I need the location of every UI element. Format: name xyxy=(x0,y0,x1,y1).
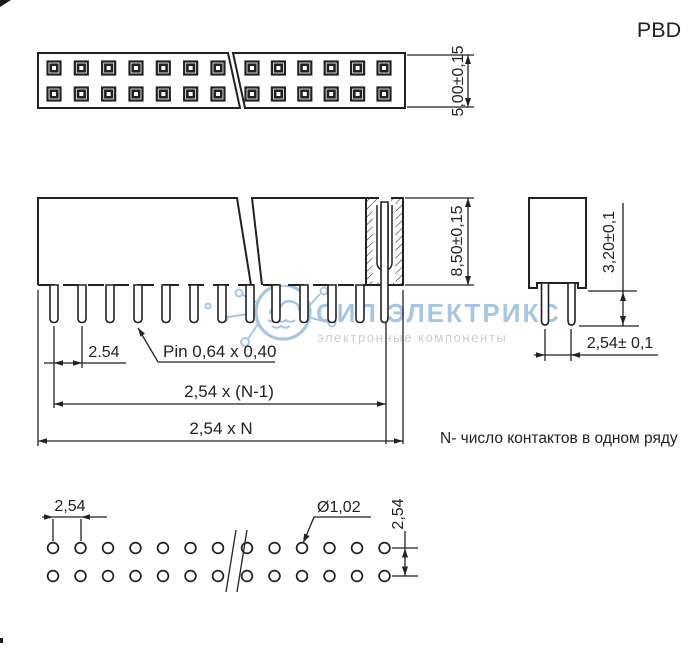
pin xyxy=(542,283,549,325)
footprint-hole xyxy=(130,543,141,554)
socket-hole-inner xyxy=(275,65,282,72)
socket-hole-inner xyxy=(249,91,256,98)
footprint-hole xyxy=(242,571,253,582)
footprint-hole xyxy=(130,571,141,582)
footprint-hole xyxy=(379,571,390,582)
socket-hole-inner xyxy=(133,91,140,98)
pin-size-label: Pin 0,64 x 0,40 xyxy=(163,342,276,361)
socket-hole-inner xyxy=(249,65,256,72)
socket-hole-inner xyxy=(381,91,388,98)
footprint-hole xyxy=(103,543,114,554)
footprint-hole xyxy=(75,543,86,554)
socket-hole-inner xyxy=(51,65,58,72)
break-line xyxy=(237,530,247,592)
socket-hole-inner xyxy=(302,65,309,72)
pin xyxy=(218,285,226,323)
dim-top-height-label: 5,00±0,15 xyxy=(450,45,467,116)
corner-mark-bottom-left xyxy=(0,638,3,643)
arrowhead xyxy=(73,360,82,366)
dim-side-height-label: 8,50±0,15 xyxy=(449,205,466,276)
footprint-hole xyxy=(352,543,363,554)
arrowhead xyxy=(536,352,545,358)
socket-hole-inner xyxy=(381,65,388,72)
arrowhead xyxy=(377,401,386,407)
arrowhead xyxy=(81,514,90,520)
break-line xyxy=(226,530,236,592)
pin xyxy=(50,285,58,323)
footprint-holes xyxy=(48,543,390,582)
socket-hole-inner xyxy=(302,91,309,98)
footprint-hole xyxy=(379,543,390,554)
sectioned-pin xyxy=(381,202,388,323)
socket-hole-inner xyxy=(160,91,167,98)
footprint-hole xyxy=(48,543,59,554)
footprint-hole xyxy=(297,571,308,582)
socket-hole-inner xyxy=(133,65,140,72)
dim-hole-diameter-label: Ø1,02 xyxy=(317,499,361,516)
arrowhead xyxy=(571,352,580,358)
pin xyxy=(162,285,170,323)
socket-hole-inner xyxy=(78,65,85,72)
arrowhead xyxy=(303,534,310,544)
watermark-brand: СИЛ ЭЛЕКТРИКС xyxy=(316,298,561,328)
arrowhead xyxy=(138,328,145,337)
arrowhead xyxy=(620,292,626,301)
socket-hole-inner xyxy=(328,91,335,98)
dim-footprint-row-pitch-label: 2,54 xyxy=(390,498,407,529)
footprint-hole xyxy=(269,543,280,554)
end-view-body xyxy=(529,198,586,288)
dim-row-pitch: 2,54± 0,1 xyxy=(534,329,658,361)
socket-hole-inner xyxy=(105,91,112,98)
pin xyxy=(272,285,280,323)
footprint-hole xyxy=(324,543,335,554)
corner-mark-top-left xyxy=(0,0,11,7)
socket-hole-inner xyxy=(354,65,361,72)
pin xyxy=(568,283,575,325)
dim-pin-pitch-label: 2.54 xyxy=(88,344,119,361)
footprint-view: 2,54 Ø1,02 2,54 xyxy=(42,498,418,592)
footprint-hole xyxy=(185,543,196,554)
socket-hole-inner xyxy=(105,65,112,72)
dim-hole-diameter: Ø1,02 xyxy=(303,499,371,543)
pin xyxy=(328,285,336,323)
footprint-hole xyxy=(158,543,169,554)
top-view: 5,00±0,15 xyxy=(38,45,474,116)
dim-total-width-label: 2,54 x N xyxy=(189,419,252,438)
socket-hole-inner xyxy=(215,65,222,72)
dim-footprint-pitch: 2,54 xyxy=(42,498,107,541)
arrowhead xyxy=(402,549,408,558)
socket-hole-inner xyxy=(275,91,282,98)
footprint-hole xyxy=(185,571,196,582)
footprint-hole xyxy=(269,571,280,582)
pin xyxy=(78,285,86,323)
note-text: N- число контактов в одном ряду xyxy=(440,430,678,447)
arrowhead xyxy=(620,316,626,325)
arrowhead xyxy=(402,567,408,576)
socket-hole-inner xyxy=(51,91,58,98)
pin xyxy=(356,285,364,323)
dim-footprint-row-pitch: 2,54 xyxy=(390,498,418,576)
watermark-tagline: электронные компоненты xyxy=(317,330,507,345)
footprint-hole xyxy=(297,543,308,554)
socket-hole-inner xyxy=(328,65,335,72)
socket-hole-inner xyxy=(187,65,194,72)
socket-hole-inner xyxy=(78,91,85,98)
footprint-hole xyxy=(213,571,224,582)
technical-drawing: СИЛ ЭЛЕКТРИКС электронные компоненты PBD… xyxy=(0,0,699,647)
socket-hole-inner xyxy=(215,91,222,98)
footprint-hole xyxy=(324,571,335,582)
end-view: 3,20±0,1 2,54± 0,1 xyxy=(529,198,658,361)
page-title: PBD xyxy=(637,18,681,42)
dim-pin-length: 3,20±0,1 xyxy=(579,203,639,326)
arrowhead xyxy=(44,514,53,520)
pin xyxy=(190,285,198,323)
socket-hole-inner xyxy=(187,91,194,98)
socket-hole-inner xyxy=(160,65,167,72)
pin xyxy=(106,285,114,323)
arrowhead xyxy=(54,360,63,366)
leader-line xyxy=(304,517,371,541)
dim-side-height: 8,50±0,15 xyxy=(405,198,474,285)
socket-hole-inner xyxy=(354,91,361,98)
dim-footprint-pitch-label: 2,54 xyxy=(54,498,85,515)
side-view-body-left xyxy=(38,198,251,285)
footprint-hole xyxy=(213,543,224,554)
pin xyxy=(134,285,142,323)
arrowhead xyxy=(54,401,63,407)
pin xyxy=(246,285,254,323)
pin-size-callout: Pin 0,64 x 0,40 xyxy=(138,328,276,362)
footprint-hole xyxy=(103,571,114,582)
arrowhead xyxy=(394,438,403,444)
dim-pin-length-label: 3,20±0,1 xyxy=(601,211,618,273)
dim-top-height: 5,00±0,15 xyxy=(407,45,474,116)
footprint-hole xyxy=(48,571,59,582)
pin xyxy=(300,285,308,323)
dim-row-pitch-label: 2,54± 0,1 xyxy=(587,335,654,352)
watermark-wave-icon xyxy=(272,326,290,328)
drawing-page: СИЛ ЭЛЕКТРИКС электронные компоненты PBD… xyxy=(0,0,699,647)
arrowhead xyxy=(38,438,47,444)
footprint-hole xyxy=(352,571,363,582)
footprint-hole xyxy=(158,571,169,582)
dim-span-label: 2,54 x (N-1) xyxy=(184,382,274,401)
footprint-hole xyxy=(75,571,86,582)
dim-pin-pitch: 2.54 xyxy=(44,326,126,408)
